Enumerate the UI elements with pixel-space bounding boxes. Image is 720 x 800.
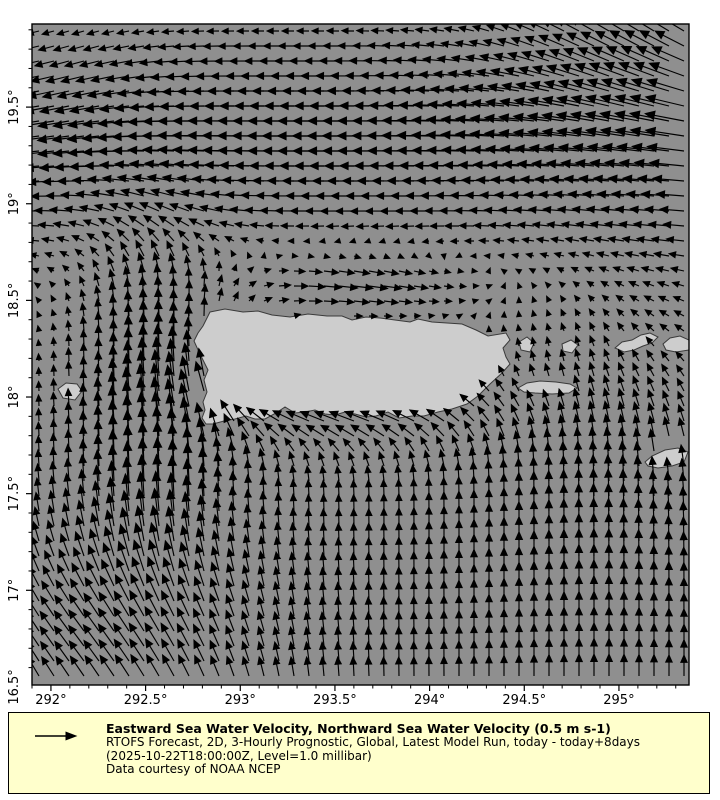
x-tick-label: 294° (414, 693, 445, 708)
x-tick-label: 293.5° (313, 693, 357, 708)
velocity-quiver-map: 292°292.5°293°293.5°294°294.5°295°16.5°1… (0, 0, 720, 800)
y-tick-label: 17° (7, 579, 22, 602)
x-tick-label: 295° (603, 693, 634, 708)
legend-title: Eastward Sea Water Velocity, Northward S… (106, 721, 703, 736)
legend-box: Eastward Sea Water Velocity, Northward S… (8, 712, 710, 794)
legend-timestamp: (2025-10-22T18:00:00Z, Level=1.0 milliba… (106, 750, 703, 764)
y-tick-label: 19° (7, 192, 22, 215)
x-tick-label: 292° (35, 693, 66, 708)
y-tick-label: 18.5° (7, 283, 22, 318)
x-tick-label: 292.5° (124, 693, 168, 708)
y-tick-label: 17.5° (7, 476, 22, 511)
legend-credit: Data courtesy of NOAA NCEP (106, 763, 703, 777)
x-tick-label: 293° (225, 693, 256, 708)
reference-arrow-icon (33, 729, 95, 743)
legend-text-block: Eastward Sea Water Velocity, Northward S… (106, 721, 703, 777)
y-tick-label: 19.5° (7, 89, 22, 124)
x-tick-label: 294.5° (502, 693, 546, 708)
y-tick-label: 18° (7, 385, 22, 408)
sea-water-velocity-plot-page: 292°292.5°293°293.5°294°294.5°295°16.5°1… (0, 0, 720, 800)
y-tick-label: 16.5° (7, 669, 22, 704)
legend-subtitle: RTOFS Forecast, 2D, 3-Hourly Prognostic,… (106, 736, 703, 750)
